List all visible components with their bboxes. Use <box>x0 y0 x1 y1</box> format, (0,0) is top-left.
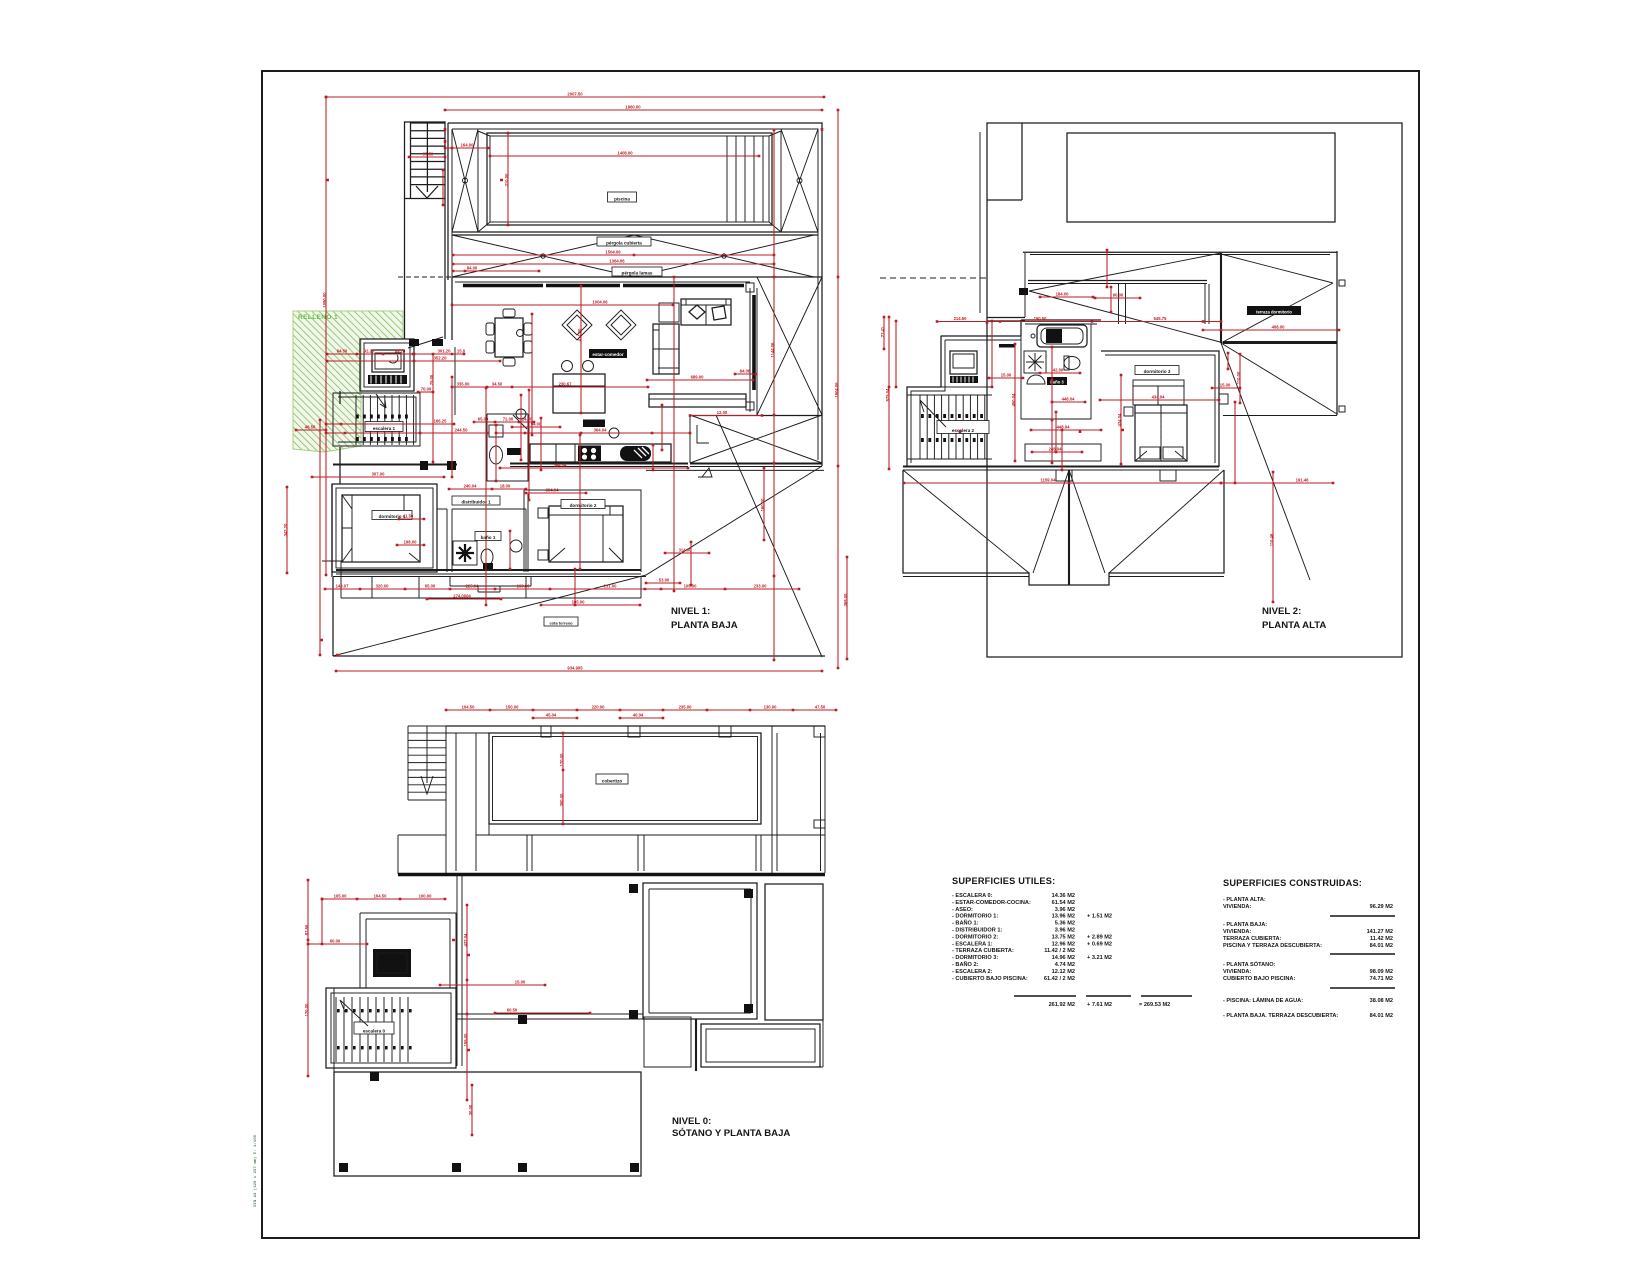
svg-text:104.50: 104.50 <box>462 704 475 709</box>
svg-text:274.0004: 274.0004 <box>453 593 471 598</box>
svg-text:11.42 / 2 M2: 11.42 / 2 M2 <box>1044 948 1075 954</box>
svg-text:escalera 2: escalera 2 <box>952 428 975 433</box>
svg-text:164.00: 164.00 <box>461 142 474 147</box>
svg-text:+ 1.51 M2: + 1.51 M2 <box>1087 914 1112 920</box>
svg-text:12.12 M2: 12.12 M2 <box>1052 969 1075 975</box>
svg-text:84.00: 84.00 <box>467 265 478 270</box>
svg-text:+ 7.61 M2: + 7.61 M2 <box>1087 1002 1112 1008</box>
svg-text:300.00: 300.00 <box>559 793 564 806</box>
svg-text:150.00: 150.00 <box>506 704 519 709</box>
svg-text:= 269.53 M2: = 269.53 M2 <box>1139 1002 1170 1008</box>
svg-text:SUPERFICIES UTILES:: SUPERFICIES UTILES: <box>952 876 1055 886</box>
svg-text:335.00: 335.00 <box>457 381 470 386</box>
svg-text:40.04: 40.04 <box>633 712 644 717</box>
svg-text:231.00: 231.00 <box>604 583 617 588</box>
svg-text:100.00: 100.00 <box>419 893 432 898</box>
svg-text:70.00: 70.00 <box>421 386 432 391</box>
svg-text:432.04: 432.04 <box>463 933 468 946</box>
svg-text:14.96 M2: 14.96 M2 <box>1052 955 1075 961</box>
svg-text:14.00: 14.00 <box>522 416 533 421</box>
svg-text:170.00: 170.00 <box>304 1003 309 1016</box>
svg-text:1159.04: 1159.04 <box>1041 477 1057 482</box>
svg-text:VIVIENDA:: VIVIENDA: <box>1223 904 1251 910</box>
svg-text:141.27 M2: 141.27 M2 <box>1367 929 1393 935</box>
svg-text:1144.06: 1144.06 <box>770 342 775 358</box>
svg-text:3.96 M2: 3.96 M2 <box>1055 928 1075 934</box>
svg-text:- CUBIERTO BAJO PISCINA:: - CUBIERTO BAJO PISCINA: <box>952 976 1028 982</box>
svg-text:TERRAZA CUBIERTA:: TERRAZA CUBIERTA: <box>1223 936 1282 942</box>
svg-text:220.00: 220.00 <box>592 704 605 709</box>
svg-text:3.96 M2: 3.96 M2 <box>1055 907 1075 913</box>
svg-text:14.36 M2: 14.36 M2 <box>1052 893 1075 899</box>
svg-text:PLANTA ALTA: PLANTA ALTA <box>1262 620 1326 631</box>
svg-text:160.00: 160.00 <box>760 498 765 511</box>
svg-text:- ESCALERA 2:: - ESCALERA 2: <box>952 969 993 975</box>
svg-text:5.36 M2: 5.36 M2 <box>1055 921 1075 927</box>
svg-text:184.00: 184.00 <box>1056 291 1069 296</box>
svg-text:65.00: 65.00 <box>478 416 489 421</box>
svg-text:84.01 M2: 84.01 M2 <box>1370 1013 1393 1019</box>
svg-text:575.04: 575.04 <box>885 388 890 401</box>
svg-text:140.07: 140.07 <box>336 583 349 588</box>
svg-text:545.75: 545.75 <box>1154 316 1167 321</box>
svg-text:CUBIERTO BAJO PISCINA:: CUBIERTO BAJO PISCINA: <box>1223 976 1295 982</box>
svg-text:261.92 M2: 261.92 M2 <box>1049 1002 1075 1008</box>
svg-text:248.04: 248.04 <box>1049 446 1062 451</box>
svg-text:61.54 M2: 61.54 M2 <box>1052 900 1075 906</box>
svg-text:414.00: 414.00 <box>577 328 582 341</box>
svg-text:1004.06: 1004.06 <box>592 299 608 304</box>
svg-text:60.50: 60.50 <box>507 1007 518 1012</box>
svg-text:97.50: 97.50 <box>423 151 434 156</box>
svg-text:320.00: 320.00 <box>376 583 389 588</box>
svg-text:PISCINA Y TERRAZA DESCUBIERTA:: PISCINA Y TERRAZA DESCUBIERTA: <box>1223 943 1322 949</box>
svg-text:PLANTA BAJA: PLANTA BAJA <box>671 620 738 631</box>
svg-text:170.00: 170.00 <box>559 753 564 766</box>
svg-text:41.50: 41.50 <box>403 513 414 518</box>
svg-text:150.50: 150.50 <box>1034 316 1047 321</box>
svg-text:84.01 M2: 84.01 M2 <box>1370 943 1393 949</box>
svg-text:448.04: 448.04 <box>1062 396 1075 401</box>
svg-text:dormitorio 3: dormitorio 3 <box>1144 369 1171 374</box>
svg-text:- BAÑO 2:: - BAÑO 2: <box>952 961 979 968</box>
svg-text:distribuidor 1: distribuidor 1 <box>461 499 491 504</box>
svg-text:110.00: 110.00 <box>1236 371 1241 384</box>
svg-text:198.00: 198.00 <box>404 539 417 544</box>
svg-text:72.00: 72.00 <box>503 416 514 421</box>
svg-text:NIVEL 0:: NIVEL 0: <box>672 1116 711 1127</box>
svg-text:352.20: 352.20 <box>434 355 447 360</box>
svg-text:96.29 M2: 96.29 M2 <box>1370 904 1393 910</box>
svg-text:105.00: 105.00 <box>572 599 585 604</box>
svg-text:314.00: 314.00 <box>679 547 692 552</box>
svg-text:1904.06: 1904.06 <box>834 382 839 398</box>
svg-text:225.04: 225.04 <box>466 583 479 588</box>
svg-text:DIN A3 (420 x 297 mm) E: 1/1: DIN A3 (420 x 297 mm) E: 1/100 <box>253 1134 258 1207</box>
svg-text:- DORMITORIO 2:: - DORMITORIO 2: <box>952 934 998 940</box>
svg-text:160.00: 160.00 <box>517 583 530 588</box>
svg-text:NIVEL 1:: NIVEL 1: <box>671 606 710 617</box>
svg-text:60.00: 60.00 <box>330 938 341 943</box>
svg-text:53.00: 53.00 <box>659 577 670 582</box>
svg-text:15.00: 15.00 <box>515 979 526 984</box>
svg-text:15.00: 15.00 <box>1001 372 1012 377</box>
svg-text:1860.00: 1860.00 <box>625 104 641 109</box>
svg-text:13.75 M2: 13.75 M2 <box>1052 934 1075 940</box>
svg-text:301.20: 301.20 <box>438 348 451 353</box>
svg-text:NIVEL 2:: NIVEL 2: <box>1262 606 1301 617</box>
svg-text:VIVIENDA:: VIVIENDA: <box>1223 929 1251 935</box>
svg-text:307.00: 307.00 <box>372 471 385 476</box>
svg-text:- ESCALERA 0:: - ESCALERA 0: <box>952 893 993 899</box>
svg-text:1504.06: 1504.06 <box>605 249 621 254</box>
svg-text:12.96 M2: 12.96 M2 <box>1052 941 1075 947</box>
svg-text:baño 1: baño 1 <box>481 535 496 540</box>
svg-text:230.67: 230.67 <box>559 381 572 386</box>
svg-text:34.50: 34.50 <box>492 381 503 386</box>
svg-text:191.46: 191.46 <box>1296 477 1309 482</box>
svg-text:46.50: 46.50 <box>305 424 316 429</box>
svg-text:214.50: 214.50 <box>954 316 967 321</box>
svg-text:- ASEO:: - ASEO: <box>952 907 973 913</box>
svg-text:45.04: 45.04 <box>546 712 557 717</box>
svg-text:12.00: 12.00 <box>717 410 728 415</box>
svg-text:30.00: 30.00 <box>468 1104 473 1115</box>
svg-text:dormitorio 1: dormitorio 1 <box>379 514 406 519</box>
svg-text:92.20: 92.20 <box>364 348 375 353</box>
svg-text:74.71 M2: 74.71 M2 <box>1370 976 1393 982</box>
svg-text:244.50: 244.50 <box>455 427 468 432</box>
svg-text:piscina: piscina <box>614 196 630 201</box>
svg-text:448.04: 448.04 <box>1057 424 1070 429</box>
svg-text:1364.06: 1364.06 <box>609 258 625 263</box>
svg-text:42.00: 42.00 <box>1053 367 1064 372</box>
svg-text:1090.00: 1090.00 <box>322 292 327 308</box>
svg-text:689.00: 689.00 <box>691 374 704 379</box>
svg-text:- TERRAZA CUBIERTA:: - TERRAZA CUBIERTA: <box>952 948 1014 954</box>
svg-text:SUPERFICIES CONSTRUIDAS:: SUPERFICIES CONSTRUIDAS: <box>1223 878 1362 888</box>
svg-text:130.00: 130.00 <box>764 704 777 709</box>
svg-text:240.04: 240.04 <box>464 483 477 488</box>
svg-text:89.20: 89.20 <box>395 348 406 353</box>
svg-text:61.42 / 2 M2: 61.42 / 2 M2 <box>1044 976 1075 982</box>
svg-text:65.00: 65.00 <box>425 583 436 588</box>
svg-text:18.00: 18.00 <box>500 483 511 488</box>
svg-text:- DISTRIBUIDOR 1:: - DISTRIBUIDOR 1: <box>952 928 1002 934</box>
svg-text:4.74 M2: 4.74 M2 <box>1055 962 1075 968</box>
svg-text:estar-comedor: estar-comedor <box>592 352 624 357</box>
svg-text:310.00: 310.00 <box>504 173 509 186</box>
svg-text:450.04: 450.04 <box>1011 393 1016 406</box>
svg-text:terraza dormitorio: terraza dormitorio <box>1256 310 1292 315</box>
svg-text:87.50: 87.50 <box>304 924 309 935</box>
svg-text:cota terreno: cota terreno <box>549 620 573 625</box>
svg-text:155.00: 155.00 <box>463 1033 468 1046</box>
svg-text:+ 2.89 M2: + 2.89 M2 <box>1087 934 1112 940</box>
svg-text:84.06: 84.06 <box>740 368 751 373</box>
svg-text:98.09 M2: 98.09 M2 <box>1370 969 1393 975</box>
svg-text:15.00: 15.00 <box>1220 382 1231 387</box>
svg-text:235.00: 235.00 <box>679 704 692 709</box>
svg-text:VIVIENDA:: VIVIENDA: <box>1223 969 1251 975</box>
svg-text:- DORMITORIO 1:: - DORMITORIO 1: <box>952 914 998 920</box>
svg-text:27.41: 27.41 <box>880 326 885 337</box>
svg-text:- PLANTA ALTA:: - PLANTA ALTA: <box>1223 897 1266 903</box>
svg-text:434.04: 434.04 <box>1117 413 1122 426</box>
svg-text:110.46: 110.46 <box>1269 533 1274 546</box>
svg-text:dormitorio 2: dormitorio 2 <box>570 503 597 508</box>
svg-text:233.00: 233.00 <box>754 583 767 588</box>
svg-text:934.905: 934.905 <box>567 665 583 670</box>
svg-text:75.00: 75.00 <box>429 374 434 385</box>
svg-text:364.04: 364.04 <box>554 462 567 467</box>
svg-text:105.00: 105.00 <box>334 893 347 898</box>
svg-text:90.00: 90.00 <box>1113 292 1124 297</box>
svg-text:15.0: 15.0 <box>457 348 466 353</box>
svg-text:342.20: 342.20 <box>283 523 288 536</box>
svg-text:+ 0.69 M2: + 0.69 M2 <box>1087 941 1112 947</box>
svg-text:RELLENO 1: RELLENO 1 <box>298 314 338 321</box>
svg-text:11.42 M2: 11.42 M2 <box>1370 936 1393 942</box>
svg-text:pérgola cubierta: pérgola cubierta <box>606 240 642 245</box>
svg-text:166.25: 166.25 <box>434 418 447 423</box>
svg-text:- PLANTA BAJA. TERRAZA DESCUBI: - PLANTA BAJA. TERRAZA DESCUBIERTA: <box>1223 1013 1338 1019</box>
svg-text:104.50: 104.50 <box>374 893 387 898</box>
svg-text:434.04: 434.04 <box>1152 394 1165 399</box>
svg-text:364.04: 364.04 <box>594 427 607 432</box>
svg-text:38.08 M2: 38.08 M2 <box>1370 998 1393 1004</box>
svg-text:cobertizo: cobertizo <box>602 778 623 783</box>
svg-text:escalera 1: escalera 1 <box>373 426 396 431</box>
svg-text:escalera 0: escalera 0 <box>363 1028 386 1033</box>
svg-text:- PLANTA BAJA:: - PLANTA BAJA: <box>1223 922 1267 928</box>
svg-text:304.04: 304.04 <box>546 487 559 492</box>
svg-text:SÓTANO Y PLANTA BAJA: SÓTANO Y PLANTA BAJA <box>672 1127 790 1139</box>
svg-text:47.50: 47.50 <box>815 704 826 709</box>
svg-text:- PLANTA SÓTANO:: - PLANTA SÓTANO: <box>1223 960 1276 968</box>
svg-text:64.50: 64.50 <box>337 348 348 353</box>
svg-text:1408.00: 1408.00 <box>617 150 633 155</box>
svg-text:408.00: 408.00 <box>1272 324 1285 329</box>
svg-text:- ESCALERA 1:: - ESCALERA 1: <box>952 941 993 947</box>
svg-text:- BAÑO 1:: - BAÑO 1: <box>952 920 979 927</box>
svg-text:+ 3.21 M2: + 3.21 M2 <box>1087 955 1112 961</box>
svg-text:2007.50: 2007.50 <box>567 91 583 96</box>
svg-text:- ESTAR-COMEDOR-COCINA:: - ESTAR-COMEDOR-COCINA: <box>952 900 1031 906</box>
svg-text:pérgola lamas: pérgola lamas <box>622 270 653 275</box>
svg-text:13.96 M2: 13.96 M2 <box>1052 914 1075 920</box>
svg-text:- PISCINA: LÁMINA DE AGUA:: - PISCINA: LÁMINA DE AGUA: <box>1223 997 1303 1004</box>
svg-text:- DORMITORIO 3:: - DORMITORIO 3: <box>952 955 998 961</box>
svg-text:369.00: 369.00 <box>843 593 848 606</box>
